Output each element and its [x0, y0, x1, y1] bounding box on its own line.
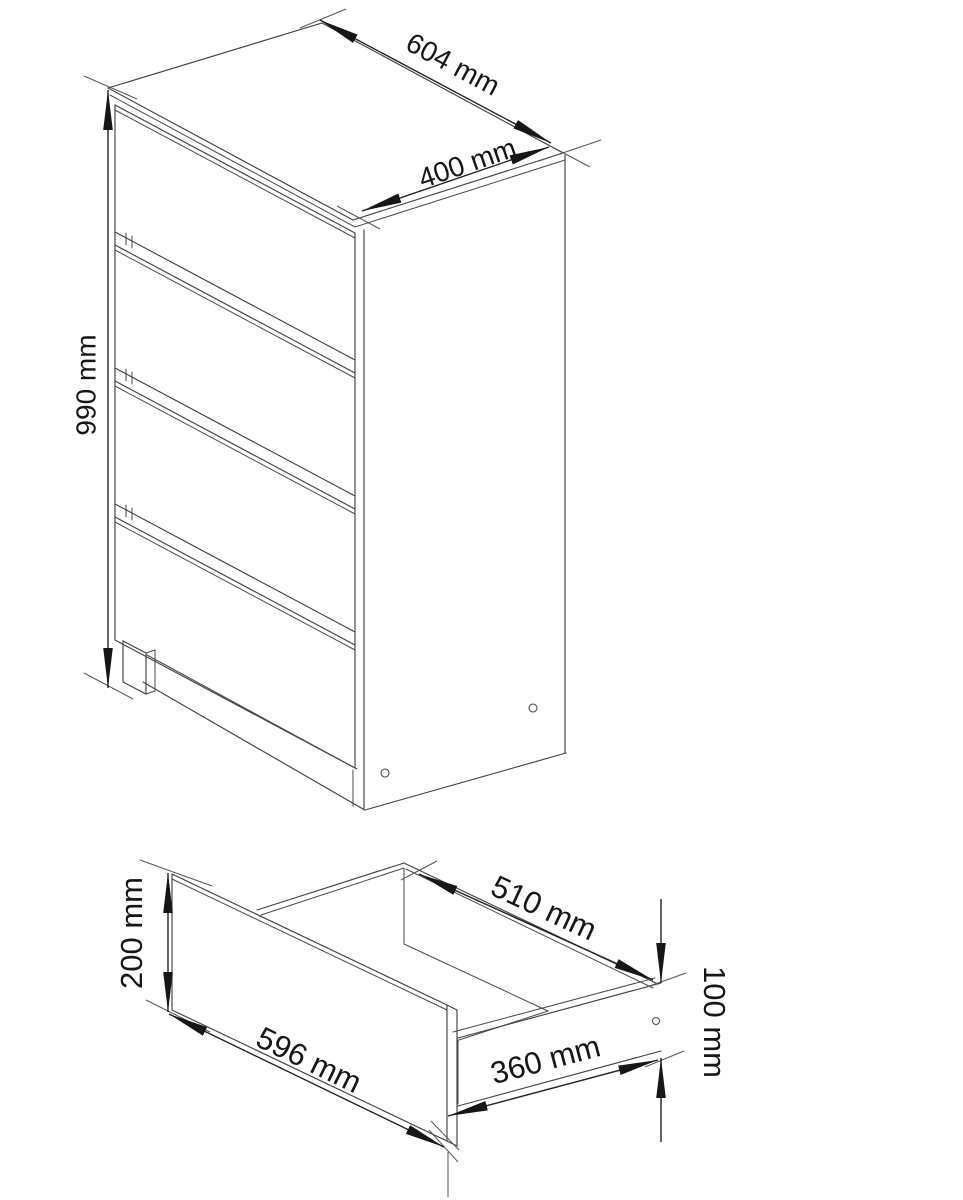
- drawing-canvas: 990 mm 604 mm 400 mm: [0, 0, 963, 1200]
- cabinet-foot: [123, 641, 146, 694]
- dim-label-drawer-side-height: 100 mm: [697, 966, 732, 1078]
- technical-drawing: 990 mm 604 mm 400 mm: [0, 0, 963, 1200]
- dim-label-drawer-front-width: 596 mm: [251, 1020, 367, 1100]
- dim-line-drawer-front-width: [169, 1014, 444, 1147]
- drawer-view: 200 mm 596 mm 510 mm 360 mm 100 mm: [114, 860, 732, 1197]
- dim-label-cabinet-height: 990 mm: [70, 334, 101, 435]
- side-hole-icon: [653, 1018, 660, 1025]
- drawer-front-panel: [172, 874, 457, 1146]
- dim-label-cabinet-depth: 400 mm: [414, 132, 520, 194]
- cabinet-base: [123, 641, 363, 809]
- cabinet-drawer-fronts: [115, 105, 355, 768]
- drawer-dimensions: 200 mm 596 mm 510 mm 360 mm 100 mm: [114, 860, 732, 1197]
- side-hole-icon: [529, 704, 537, 712]
- dim-label-drawer-front-height: 200 mm: [114, 877, 149, 989]
- cabinet-dimensions: 990 mm 604 mm 400 mm: [70, 9, 601, 699]
- side-hole-icon: [381, 769, 389, 777]
- cabinet-side-panel: [364, 155, 566, 810]
- cabinet-view: 990 mm 604 mm 400 mm: [70, 9, 601, 810]
- cabinet-top-face: [108, 23, 565, 227]
